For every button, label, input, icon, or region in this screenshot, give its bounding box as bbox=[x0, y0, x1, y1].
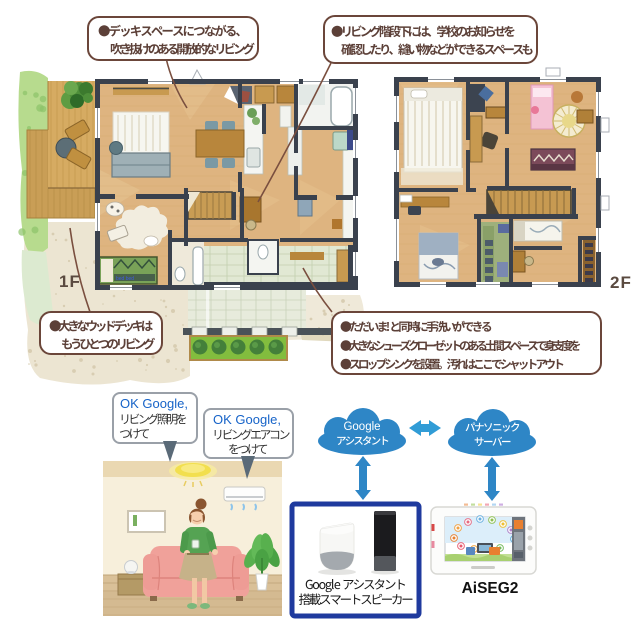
svg-text:1F: 1F bbox=[59, 272, 81, 291]
svg-text:OK Google,: OK Google, bbox=[120, 396, 188, 411]
svg-text:bed bed: bed bed bbox=[116, 276, 134, 282]
svg-text:Google: Google bbox=[343, 421, 380, 433]
svg-text:AiSEG2: AiSEG2 bbox=[462, 580, 519, 597]
svg-text:OK Google,: OK Google, bbox=[213, 412, 281, 427]
svg-text:2F: 2F bbox=[610, 273, 632, 292]
